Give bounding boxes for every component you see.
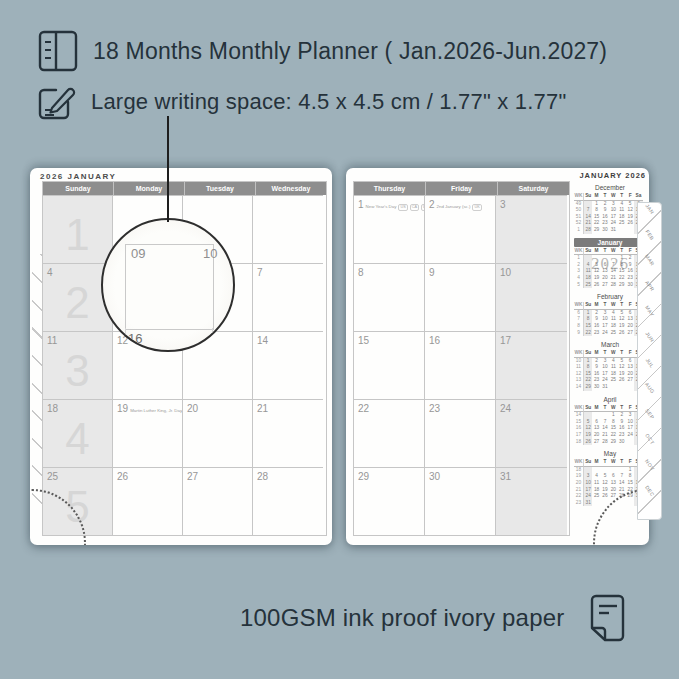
feature-writing-space-text: Large writing space: 4.5 x 4.5 cm / 1.77… — [91, 89, 566, 115]
day-cell: 1New Year's DayUSCAUKAUNZ — [354, 195, 425, 263]
holiday-label: 2nd January (sc.) — [437, 204, 471, 209]
week-row: 222324 — [354, 399, 569, 467]
date-number: 16 — [429, 335, 440, 346]
feature-paper-row: 100GSM ink proof ivory paper — [240, 592, 628, 644]
mini-date: 6 — [609, 473, 617, 480]
holiday-label: Martin Luther King, Jr. Day — [130, 408, 182, 413]
mini-month: JanuaryWKSuMTWTFSa1123245678910311121314… — [574, 238, 646, 289]
magnifier-circle: 09 10 16 — [101, 218, 235, 352]
mini-date: 3 — [574, 268, 584, 275]
mini-date: 6 — [626, 358, 634, 365]
mini-date: 13 — [609, 480, 617, 487]
mini-dow: T — [601, 302, 609, 310]
mini-date: 3 — [601, 358, 609, 365]
date-number: 7 — [257, 267, 263, 278]
day-cell: 26 — [113, 467, 183, 535]
mini-dow: Su — [584, 350, 592, 358]
mini-date: 1 — [574, 255, 584, 262]
date-number: 28 — [257, 471, 268, 482]
mini-date: 24 — [626, 432, 634, 439]
mini-date: 22 — [584, 330, 592, 337]
day-cell: 22nd January (sc.)UK — [425, 195, 496, 263]
day-header: Saturday — [498, 182, 569, 195]
mini-date: 2 — [592, 310, 600, 317]
week-row: 151617 — [354, 331, 569, 399]
mini-date: 24 — [609, 220, 617, 227]
mini-date: 4 — [618, 201, 626, 208]
date-number: 15 — [358, 335, 369, 346]
mini-date: 19 — [618, 371, 626, 378]
mini-date: 11 — [574, 364, 584, 371]
mini-date — [626, 227, 634, 234]
mini-month-grid: WKSuMTWTFSa14123415567891011161213141516… — [574, 405, 646, 446]
mini-date: 9 — [592, 364, 600, 371]
mini-dow: T — [618, 350, 626, 358]
mini-date: 1 — [626, 467, 634, 474]
day-header-row: ThursdayFridaySaturday — [354, 182, 569, 195]
mini-date: 9 — [618, 419, 626, 426]
date-number: 1 — [358, 199, 364, 210]
day-cell: 30 — [425, 467, 496, 535]
mini-date: 31 — [609, 227, 617, 234]
mini-date: 10 — [601, 364, 609, 371]
mini-date: 1 — [574, 227, 584, 234]
mini-date: 18 — [584, 275, 592, 282]
mini-date: 11 — [592, 480, 600, 487]
day-header-row: SundayMondayTuesdayWednesday — [43, 182, 326, 195]
mini-date: 19 — [601, 487, 609, 494]
mini-dow: T — [618, 302, 626, 310]
mini-date — [584, 201, 592, 208]
date-number: 26 — [117, 471, 128, 482]
mini-date: 12 — [618, 364, 626, 371]
mini-date: 24 — [601, 330, 609, 337]
week-row: 293031 — [354, 467, 569, 535]
mini-date: 26 — [618, 330, 626, 337]
mini-dow: W — [609, 350, 617, 358]
mini-date: 16 — [592, 323, 600, 330]
mini-date: 13 — [592, 425, 600, 432]
mini-date: 9 — [626, 262, 634, 269]
mini-date: 9 — [592, 316, 600, 323]
mini-date: 26 — [618, 377, 626, 384]
holiday-country-badge: CA — [410, 204, 419, 211]
magnified-neighbor-right: 10 — [203, 246, 217, 261]
mini-date: 8 — [574, 323, 584, 330]
day-cell: 184 — [43, 399, 113, 467]
mini-date: 12 — [601, 480, 609, 487]
day-header: Tuesday — [185, 182, 256, 195]
mini-date: 50 — [574, 207, 584, 214]
mini-date: 9 — [601, 207, 609, 214]
mini-date: 5 — [601, 473, 609, 480]
mini-dow: WK — [574, 459, 584, 467]
mini-date: 20 — [592, 432, 600, 439]
mini-date: 20 — [609, 487, 617, 494]
sidebar-title: JANUARY 2026 — [574, 171, 646, 180]
day-header: Sunday — [43, 182, 114, 195]
mini-date: 18 — [609, 371, 617, 378]
mini-date: 25 — [609, 330, 617, 337]
pencil-note-icon — [34, 80, 78, 124]
mini-dow: Su — [584, 193, 592, 201]
mini-date: 49 — [574, 201, 584, 208]
mini-dow: T — [601, 405, 609, 413]
mini-dow: T — [601, 248, 609, 256]
mini-date: 16 — [592, 371, 600, 378]
holiday-country-badge: UK — [421, 204, 424, 211]
mini-dow: WK — [574, 302, 584, 310]
mini-date: 21 — [618, 487, 626, 494]
mini-date: 21 — [609, 275, 617, 282]
mini-date: 25 — [618, 220, 626, 227]
mini-date: 1 — [618, 255, 626, 262]
mini-date: 10 — [626, 419, 634, 426]
mini-dow: M — [592, 193, 600, 201]
mini-date: 29 — [609, 439, 617, 446]
mini-date: 17 — [601, 371, 609, 378]
day-cell: 17 — [496, 331, 567, 399]
mini-dow: WK — [574, 193, 584, 201]
mini-date — [609, 384, 617, 391]
mini-date: 7 — [584, 207, 592, 214]
mini-date: 18 — [592, 487, 600, 494]
day-header: Monday — [114, 182, 185, 195]
mini-month: FebruaryWKSuMTWTFSa612345677891011121314… — [574, 292, 646, 336]
callout-line — [167, 116, 169, 222]
mini-date: 8 — [626, 473, 634, 480]
mini-date: 8 — [584, 364, 592, 371]
date-number: 17 — [500, 335, 511, 346]
mini-date: 30 — [601, 227, 609, 234]
week-number: 4 — [43, 410, 112, 467]
mini-dow: W — [609, 248, 617, 256]
mini-date: 15 — [618, 268, 626, 275]
mini-date: 27 — [626, 330, 634, 337]
feature-writing-space-row: Large writing space: 4.5 x 4.5 cm / 1.77… — [34, 80, 566, 124]
mini-date: 6 — [601, 262, 609, 269]
mini-date — [592, 467, 600, 474]
mini-date: 18 — [574, 439, 584, 446]
mini-month-grid: WKSuMTWTFSa61234567789101112131481516171… — [574, 302, 646, 336]
mini-date: 7 — [609, 262, 617, 269]
mini-date: 16 — [618, 425, 626, 432]
left-page-title: 2026 JANUARY — [40, 172, 116, 181]
mini-date — [618, 467, 626, 474]
date-number: 30 — [429, 471, 440, 482]
mini-date — [584, 412, 592, 419]
mini-date: 52 — [574, 220, 584, 227]
date-number: 27 — [187, 471, 198, 482]
mini-date: 21 — [584, 220, 592, 227]
mini-dow: W — [609, 302, 617, 310]
day-cell: 27 — [183, 467, 253, 535]
mini-date: 13 — [574, 377, 584, 384]
mini-dow: W — [609, 405, 617, 413]
mini-dow: WK — [574, 248, 584, 256]
mini-date: 3 — [584, 473, 592, 480]
mini-date: 14 — [609, 268, 617, 275]
mini-date: 11 — [584, 268, 592, 275]
date-number: 23 — [429, 403, 440, 414]
mini-date: 5 — [626, 201, 634, 208]
mini-dow: F — [626, 350, 634, 358]
mini-date: 25 — [609, 377, 617, 384]
mini-date: 19 — [592, 275, 600, 282]
day-cell: 20 — [183, 399, 253, 467]
mini-date: 12 — [574, 371, 584, 378]
mini-date: 19 — [584, 432, 592, 439]
mini-date: 23 — [574, 500, 584, 507]
day-cell: 15 — [354, 331, 425, 399]
mini-date: 8 — [592, 207, 600, 214]
mini-dow: T — [618, 193, 626, 201]
mini-date: 16 — [601, 214, 609, 221]
date-number: 22 — [358, 403, 369, 414]
day-cell — [253, 195, 323, 263]
mini-date: 14 — [618, 480, 626, 487]
day-cell: 1 — [43, 195, 113, 263]
mini-date: 27 — [626, 377, 634, 384]
mini-dow: F — [626, 302, 634, 310]
date-number: 9 — [429, 267, 435, 278]
mini-date: 29 — [618, 282, 626, 289]
mini-date: 11 — [609, 316, 617, 323]
mini-date — [584, 255, 592, 262]
day-cell: 7 — [253, 263, 323, 331]
mini-date: 15 — [584, 323, 592, 330]
mini-dow: F — [626, 405, 634, 413]
mini-date: 17 — [626, 425, 634, 432]
day-cell: 14 — [253, 331, 323, 399]
week-number: 1 — [43, 206, 112, 263]
mini-dow: T — [618, 405, 626, 413]
mini-date: 28 — [609, 282, 617, 289]
mini-date: 25 — [584, 282, 592, 289]
mini-dow: T — [601, 459, 609, 467]
mini-date: 7 — [574, 316, 584, 323]
day-header: Friday — [426, 182, 498, 195]
planner-book-icon — [36, 28, 80, 74]
mini-month-title: May — [574, 449, 646, 458]
day-cell: 113 — [43, 331, 113, 399]
mini-date: 5 — [574, 282, 584, 289]
mini-date: 8 — [609, 419, 617, 426]
day-cell: 10 — [496, 263, 567, 331]
day-cell: 19Martin Luther King, Jr. DayUS — [113, 399, 183, 467]
date-number: 10 — [500, 267, 511, 278]
mini-date: 5 — [618, 358, 626, 365]
mini-date: 15 — [609, 425, 617, 432]
date-number: 20 — [187, 403, 198, 414]
mini-month: DecemberWKSuMTWTFSa491234565078910111213… — [574, 183, 646, 234]
mini-date: 20 — [601, 275, 609, 282]
mini-date: 29 — [592, 227, 600, 234]
week-row: 18419Martin Luther King, Jr. DayUS2021 — [43, 399, 326, 467]
mini-date: 9 — [574, 330, 584, 337]
mini-date: 4 — [609, 310, 617, 317]
mini-date: 4 — [574, 275, 584, 282]
mini-date: 24 — [601, 377, 609, 384]
mini-dow: W — [609, 459, 617, 467]
planner-right-page: ThursdayFridaySaturday1New Year's DayUSC… — [346, 168, 649, 545]
mini-date: 19 — [618, 323, 626, 330]
mini-date: 2 — [601, 201, 609, 208]
mini-date — [626, 439, 634, 446]
week-number: 3 — [43, 342, 112, 399]
mini-dow: Su — [584, 302, 592, 310]
mini-month-grid: WKSuMTWTFSa10123456711891011121314121516… — [574, 350, 646, 391]
mini-date: 6 — [626, 310, 634, 317]
mini-dow: F — [626, 248, 634, 256]
date-number: 2 — [429, 199, 435, 210]
mini-date: 1 — [592, 201, 600, 208]
mini-date: 18 — [574, 467, 584, 474]
feature-months-text: 18 Months Monthly Planner ( Jan.2026-Jun… — [93, 38, 607, 65]
mini-date — [609, 467, 617, 474]
week-row: 8910 — [354, 263, 569, 331]
mini-dow: T — [601, 350, 609, 358]
mini-date — [609, 255, 617, 262]
mini-date: 16 — [574, 425, 584, 432]
day-cell: 16 — [425, 331, 496, 399]
mini-date: 4 — [592, 473, 600, 480]
mini-dow: M — [592, 405, 600, 413]
mini-date — [618, 227, 626, 234]
mini-date: 14 — [574, 412, 584, 419]
mini-date: 21 — [601, 432, 609, 439]
mini-date: 18 — [618, 214, 626, 221]
day-header: Wednesday — [256, 182, 326, 195]
mini-dow: M — [592, 350, 600, 358]
mini-date: 8 — [584, 316, 592, 323]
mini-date: 23 — [592, 330, 600, 337]
mini-month: MarchWKSuMTWTFSa101234567118910111213141… — [574, 340, 646, 391]
day-cell: 29 — [354, 467, 425, 535]
magnified-date: 09 — [131, 246, 145, 261]
mini-date: 12 — [592, 268, 600, 275]
mini-date: 13 — [626, 364, 634, 371]
mini-dow: W — [609, 193, 617, 201]
mini-date: 5 — [592, 262, 600, 269]
mini-date: 10 — [584, 480, 592, 487]
mini-date: 30 — [618, 439, 626, 446]
mini-date: 22 — [609, 432, 617, 439]
mini-date: 2 — [574, 262, 584, 269]
mini-month: AprilWKSuMTWTFSa141234155678910111612131… — [574, 395, 646, 446]
mini-date: 12 — [626, 207, 634, 214]
mini-date: 4 — [609, 358, 617, 365]
mini-date: 11 — [618, 207, 626, 214]
day-cell: 23 — [425, 399, 496, 467]
mini-date: 21 — [574, 487, 584, 494]
mini-calendar-sidebar: JANUARY 2026 DecemberWKSuMTWTFSa49123456… — [574, 171, 646, 510]
holiday-label: New Year's Day — [366, 204, 397, 209]
mini-dow: Su — [584, 459, 592, 467]
mini-date: 27 — [592, 439, 600, 446]
date-number: 29 — [358, 471, 369, 482]
planner-product-image: 18 Months Monthly Planner ( Jan.2026-Jun… — [0, 0, 679, 679]
mini-date: 22 — [618, 275, 626, 282]
mini-date: 7 — [618, 473, 626, 480]
mini-date — [618, 384, 626, 391]
mini-date: 1 — [584, 310, 592, 317]
mini-date: 12 — [584, 425, 592, 432]
mini-date: 28 — [601, 439, 609, 446]
mini-date: 24 — [584, 493, 592, 500]
mini-date: 13 — [626, 316, 634, 323]
mini-dow: WK — [574, 350, 584, 358]
mini-date: 12 — [618, 316, 626, 323]
mini-date: 14 — [574, 384, 584, 391]
mini-date: 19 — [626, 214, 634, 221]
mini-date: 4 — [584, 262, 592, 269]
mini-dow: F — [626, 459, 634, 467]
mini-date: 17 — [609, 214, 617, 221]
date-number: 21 — [257, 403, 268, 414]
mini-month-grid: WKSuMTWTFSa11232456789103111213141516174… — [574, 248, 646, 289]
date-number: 19 — [117, 403, 128, 414]
mini-date: 28 — [584, 227, 592, 234]
mini-date: 1 — [584, 358, 592, 365]
date-number: 24 — [500, 403, 511, 414]
mini-date: 23 — [592, 377, 600, 384]
mini-date: 27 — [601, 282, 609, 289]
mini-date — [584, 467, 592, 474]
day-header: Thursday — [354, 182, 426, 195]
feature-months-row: 18 Months Monthly Planner ( Jan.2026-Jun… — [36, 28, 607, 74]
day-cell: 8 — [354, 263, 425, 331]
date-number: 8 — [358, 267, 364, 278]
mini-date: 10 — [609, 207, 617, 214]
day-cell: 9 — [425, 263, 496, 331]
week-row: 1New Year's DayUSCAUKAUNZ22nd January (s… — [354, 195, 569, 263]
day-cell: 31 — [496, 467, 567, 535]
mini-date: 51 — [574, 214, 584, 221]
mini-date — [601, 255, 609, 262]
mini-month-title: March — [574, 340, 646, 349]
mini-month-list: DecemberWKSuMTWTFSa491234565078910111213… — [574, 183, 646, 506]
mini-date: 17 — [584, 487, 592, 494]
day-cell: 22 — [354, 399, 425, 467]
mini-date: 17 — [601, 323, 609, 330]
mini-date: 17 — [574, 432, 584, 439]
mini-date: 29 — [584, 384, 592, 391]
mini-month-title: December — [574, 183, 646, 192]
mini-date: 2 — [592, 358, 600, 365]
right-month-grid: ThursdayFridaySaturday1New Year's DayUSC… — [353, 181, 570, 536]
date-number: 3 — [500, 199, 506, 210]
mini-date: 30 — [626, 282, 634, 289]
mini-date: 2 — [626, 255, 634, 262]
mini-dow: T — [618, 248, 626, 256]
mini-date: 26 — [626, 220, 634, 227]
mini-date: 5 — [618, 310, 626, 317]
mini-date: 16 — [626, 268, 634, 275]
mini-dow: T — [618, 459, 626, 467]
mini-date: 31 — [601, 384, 609, 391]
mini-date: 8 — [618, 262, 626, 269]
mini-dow: Su — [584, 248, 592, 256]
day-cell: 21 — [253, 399, 323, 467]
mini-date: 30 — [592, 384, 600, 391]
mini-date: 23 — [601, 220, 609, 227]
mini-date: 2 — [618, 412, 626, 419]
mini-date: 15 — [574, 419, 584, 426]
mini-date: 23 — [618, 432, 626, 439]
holiday-country-badge: UK — [472, 204, 481, 211]
mini-date — [592, 412, 600, 419]
